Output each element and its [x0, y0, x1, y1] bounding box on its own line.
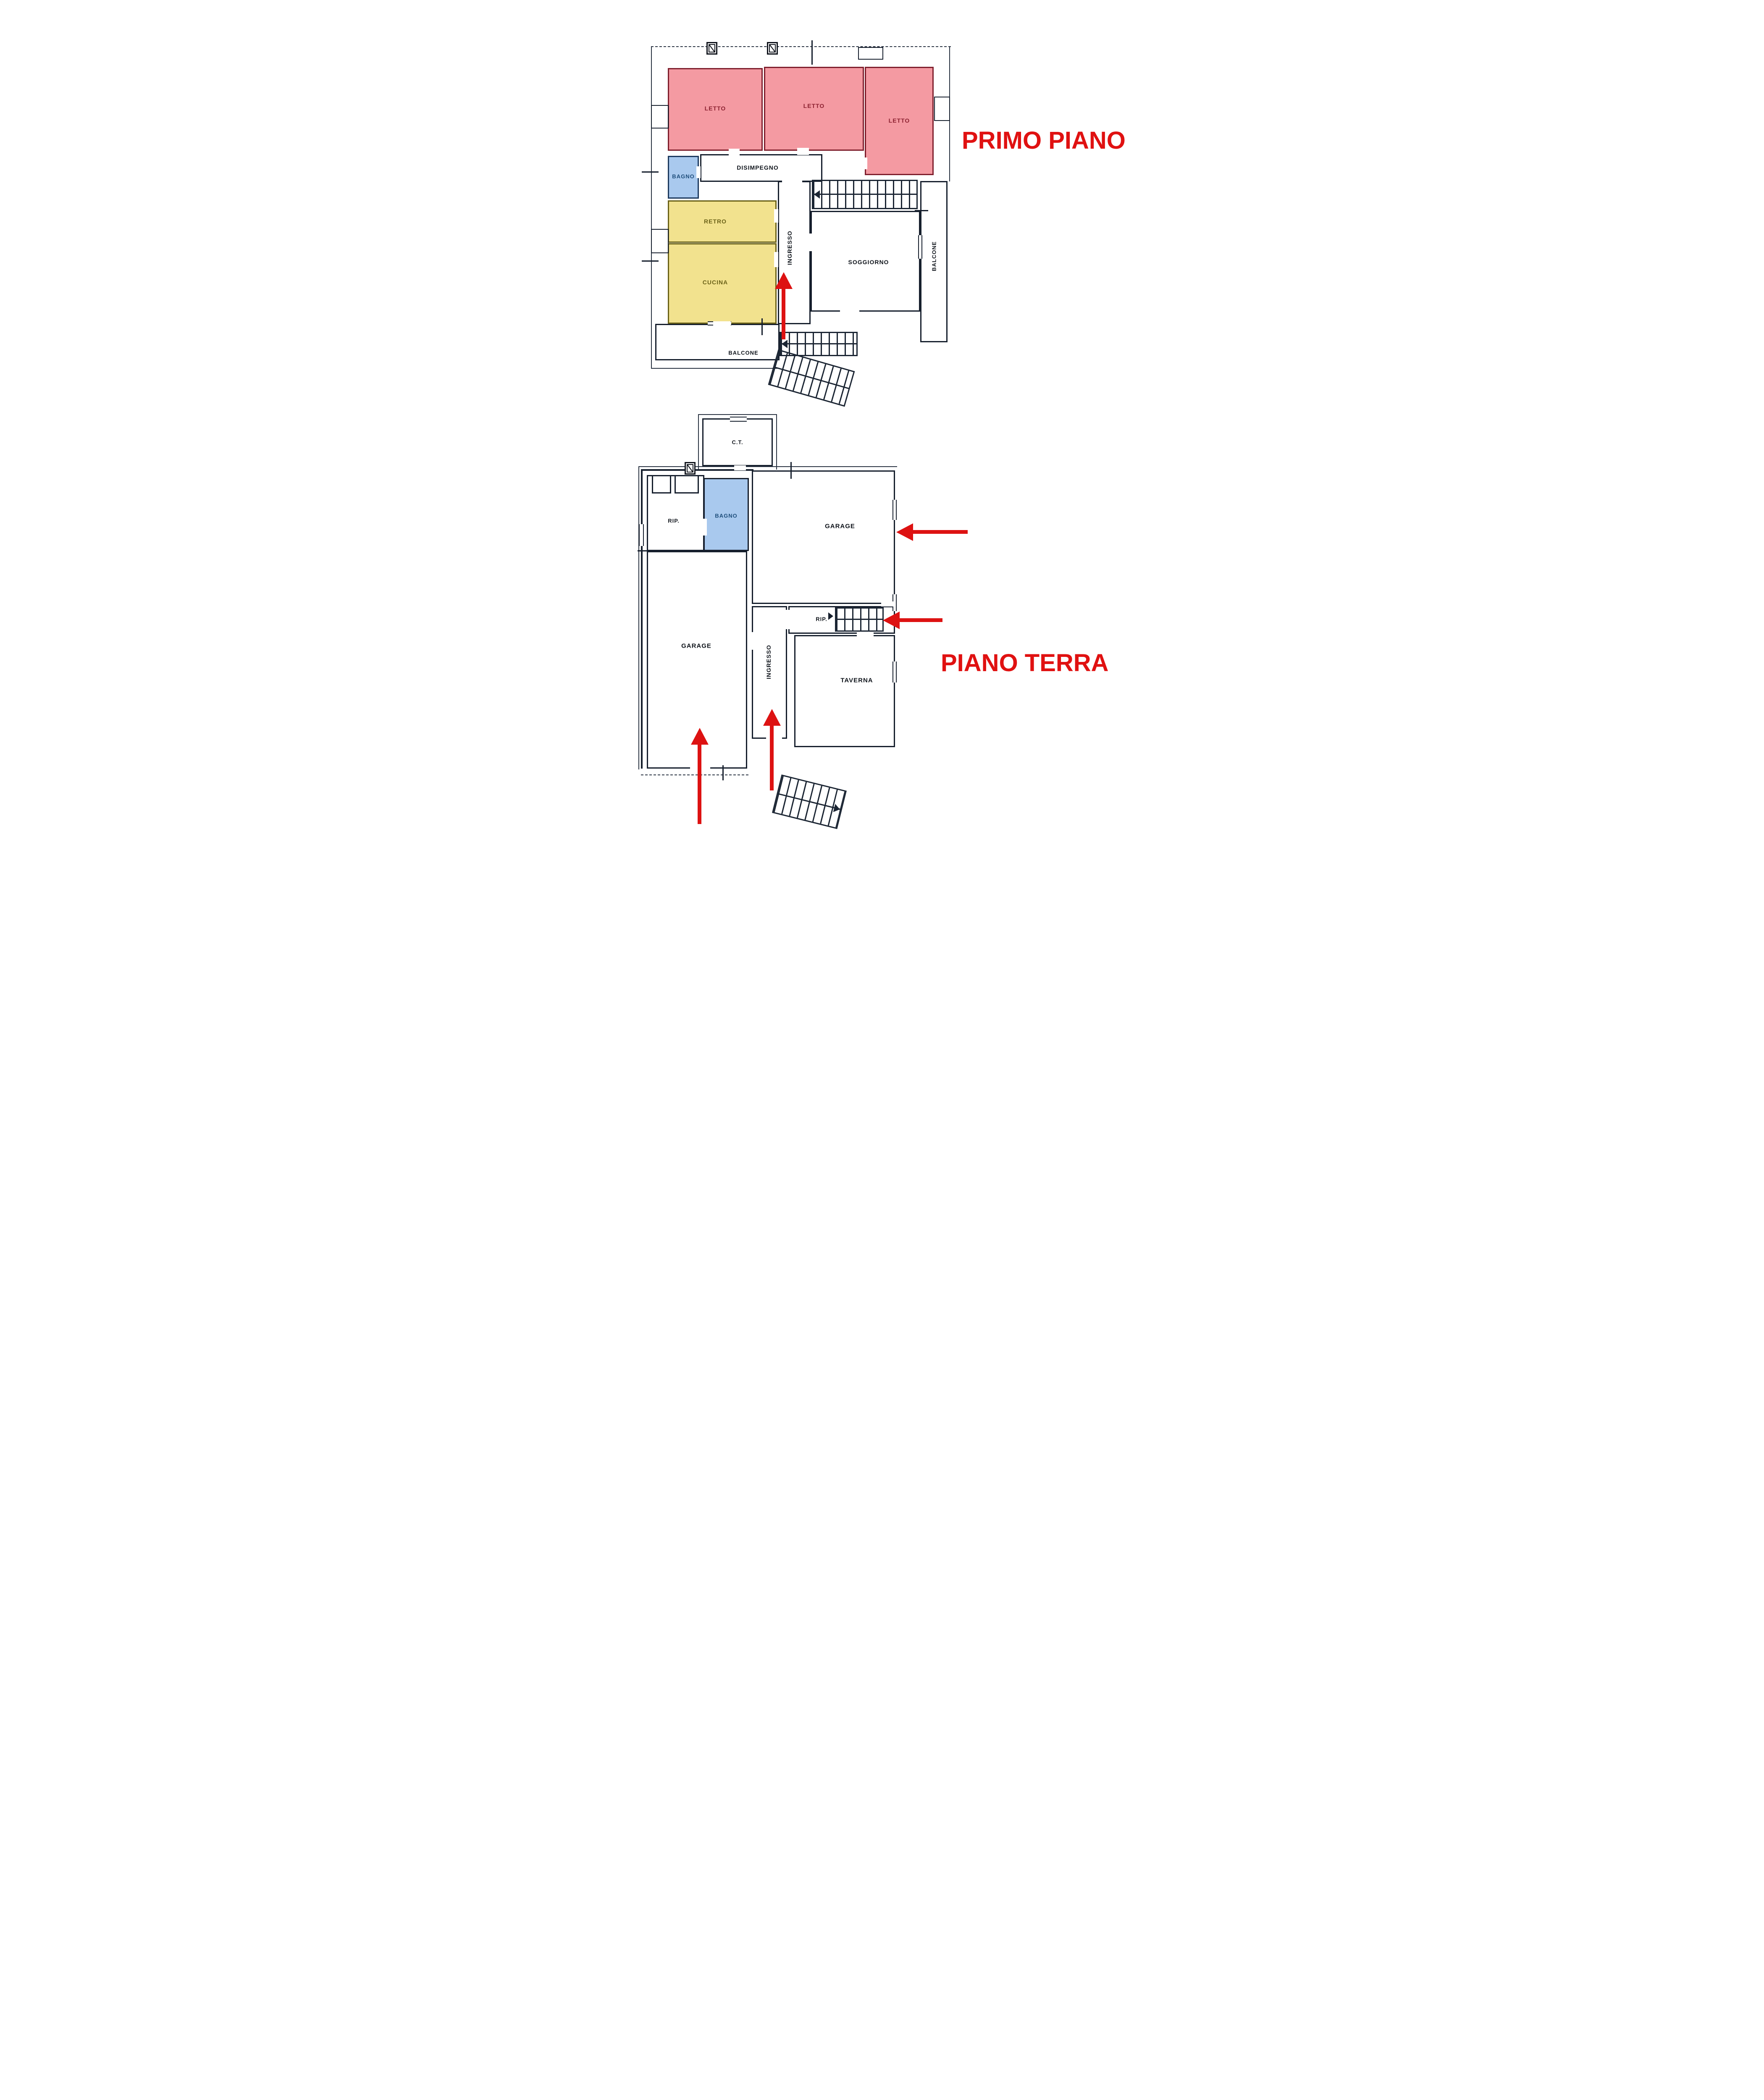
- door-gap: [785, 610, 790, 629]
- room-label-letto-3: LETTO: [889, 117, 910, 124]
- room-balcone-bottom: [655, 324, 780, 360]
- stairs-run-line: [812, 194, 917, 195]
- garage-arrow-stem: [912, 530, 968, 534]
- door-gap: [734, 465, 746, 470]
- door-gap: [713, 321, 731, 325]
- floor-title-piano-terra: PIANO TERRA: [941, 651, 1109, 675]
- room-label-balcone-right: BALCONE: [931, 241, 937, 271]
- stairs-direction-arrow-icon: [833, 804, 841, 814]
- door-gap: [857, 633, 874, 638]
- room-label-garage-top: GARAGE: [825, 523, 855, 530]
- outer-line-left-gf: [638, 466, 639, 769]
- window-icon: [730, 417, 747, 422]
- door-gap: [702, 519, 707, 535]
- window-icon: [651, 105, 669, 129]
- chimney-icon: [706, 42, 717, 55]
- outer-line-left: [651, 46, 652, 368]
- room-label-letto-2: LETTO: [803, 102, 825, 109]
- stairs-direction-arrow-icon: [782, 340, 787, 348]
- door-gap: [774, 209, 778, 223]
- stairs-run-line: [773, 366, 850, 389]
- room-label-bagno-gf: BAGNO: [715, 513, 737, 519]
- entrance-arrow-stem: [782, 288, 785, 339]
- wall: [641, 469, 643, 769]
- stairs-arrow-stem: [899, 618, 942, 622]
- wall-tick: [638, 550, 653, 551]
- room-label-garage-left: GARAGE: [681, 643, 711, 650]
- door-gap: [808, 234, 813, 251]
- door-gap: [729, 149, 740, 155]
- door-gap: [774, 252, 778, 267]
- room-label-rip-1: RIP.: [668, 518, 680, 524]
- door-gap: [782, 179, 802, 183]
- entrance-arrow-icon: [775, 272, 793, 289]
- wall-tick: [811, 40, 813, 65]
- room-label-letto-1: LETTO: [705, 105, 726, 112]
- wall-tick: [642, 171, 659, 173]
- room-label-ingresso-f1: INGRESSO: [786, 231, 793, 265]
- window-icon: [639, 524, 644, 546]
- window-icon: [892, 661, 897, 682]
- door-gap: [840, 309, 859, 313]
- outer-line-top: [651, 46, 951, 47]
- room-label-soggiorno: SOGGIORNO: [848, 259, 889, 265]
- window-icon: [934, 97, 950, 121]
- entrance-arrow-stem: [770, 724, 774, 790]
- window-icon: [651, 229, 669, 253]
- room-taverna: [794, 635, 895, 747]
- door-gap: [766, 736, 782, 741]
- entrance-arrow-icon: [763, 709, 781, 726]
- wall-tick: [790, 462, 792, 479]
- wall-tick: [642, 260, 659, 262]
- outer-line-bottom: [651, 368, 780, 369]
- room-label-balcone-bottom: BALCONE: [728, 350, 758, 356]
- garage-left-arrow-stem: [698, 743, 701, 824]
- stairs-arrow-icon: [883, 612, 900, 629]
- room-label-ingresso-gf: INGRESSO: [765, 645, 772, 679]
- wall-tick: [722, 765, 724, 780]
- closet-box: [652, 475, 671, 493]
- door-swing-icon: [828, 612, 833, 620]
- floor-title-primo-piano: PRIMO PIANO: [962, 129, 1126, 153]
- door-gap: [750, 632, 755, 650]
- chimney-icon: [685, 462, 696, 475]
- room-garage-top: [752, 470, 895, 604]
- stairs-run-line: [777, 793, 842, 810]
- stairs-internal-gf: [835, 607, 884, 632]
- outer-line-top-gf: [638, 466, 897, 467]
- floor-plan-canvas: LETTO LETTO LETTO BAGNO DISIMPEGNO RETRO…: [588, 0, 1176, 832]
- window-icon: [858, 47, 883, 60]
- room-label-rip-2: RIP.: [816, 616, 827, 622]
- window-icon: [892, 500, 897, 520]
- window-icon: [918, 235, 922, 259]
- stairs-direction-arrow-icon: [814, 190, 820, 199]
- stairs-external-f1: [780, 332, 858, 356]
- room-label-ct: C.T.: [732, 439, 743, 446]
- room-label-disimpegno: DISIMPEGNO: [737, 164, 778, 171]
- door-gap: [881, 601, 894, 606]
- stairs-run-line: [835, 619, 883, 620]
- garage-left-arrow-icon: [691, 728, 709, 745]
- room-label-taverna: TAVERNA: [840, 677, 873, 684]
- closet-box: [675, 475, 699, 493]
- garage-arrow-icon: [896, 523, 913, 541]
- outer-line-bottom-gf: [641, 774, 748, 775]
- door-gap: [863, 157, 867, 169]
- stairs-run-line: [780, 343, 857, 344]
- wall-tick: [761, 318, 763, 335]
- room-label-retro: RETRO: [704, 218, 727, 225]
- wall-tick: [915, 210, 928, 211]
- stairs-external-gf: [772, 774, 847, 829]
- room-label-cucina: CUCINA: [703, 279, 728, 286]
- door-gap: [797, 148, 809, 155]
- room-label-bagno-f1: BAGNO: [672, 173, 694, 180]
- door-gap: [696, 166, 701, 178]
- chimney-icon: [767, 42, 778, 55]
- stairs-external-diagonal-f1: [768, 349, 855, 407]
- stairs-internal-f1: [812, 180, 918, 209]
